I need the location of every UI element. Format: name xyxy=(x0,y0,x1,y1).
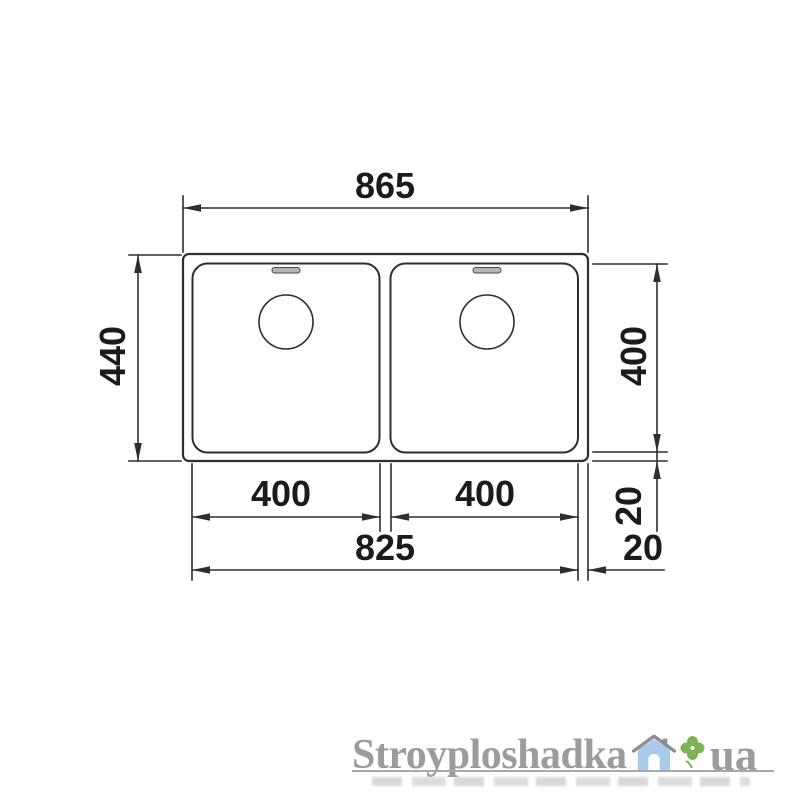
overflow-left xyxy=(272,268,300,274)
dim-825-label: 825 xyxy=(355,530,415,566)
product-dimension-diagram: 865 440 400 20 400 400 825 20 Stroyplosh… xyxy=(0,0,800,800)
overflow-right xyxy=(473,268,501,274)
dim-400-right-label: 400 xyxy=(616,326,652,386)
dim-20-right-label: 20 xyxy=(611,486,647,526)
dim-440-lines xyxy=(129,255,181,461)
watermark-brand-text: Stroyploshadka xyxy=(352,735,627,775)
bowl-left-outline xyxy=(193,264,380,453)
house-icon xyxy=(630,732,678,775)
dim-20-bottom-arrow xyxy=(588,566,606,574)
dim-20-right-arrow xyxy=(653,461,661,479)
watermark: Stroyploshadka ua xyxy=(352,729,782,775)
dim-440-label: 440 xyxy=(95,326,131,386)
drain-right xyxy=(460,295,514,349)
watermark-slogan-blur xyxy=(372,777,750,786)
sink-drawing xyxy=(0,0,800,800)
dim-865-label: 865 xyxy=(355,168,415,204)
dim-400-bowl2-label: 400 xyxy=(455,476,515,512)
clover-icon xyxy=(680,735,706,774)
watermark-underline xyxy=(352,770,774,772)
dim-400-bowl1-label: 400 xyxy=(251,476,311,512)
watermark-suffix-text: ua xyxy=(710,735,758,775)
drain-left xyxy=(259,295,313,349)
dim-20-bottom-label: 20 xyxy=(623,530,663,566)
sink-outline xyxy=(183,254,588,461)
bowl-right-outline xyxy=(391,264,579,453)
